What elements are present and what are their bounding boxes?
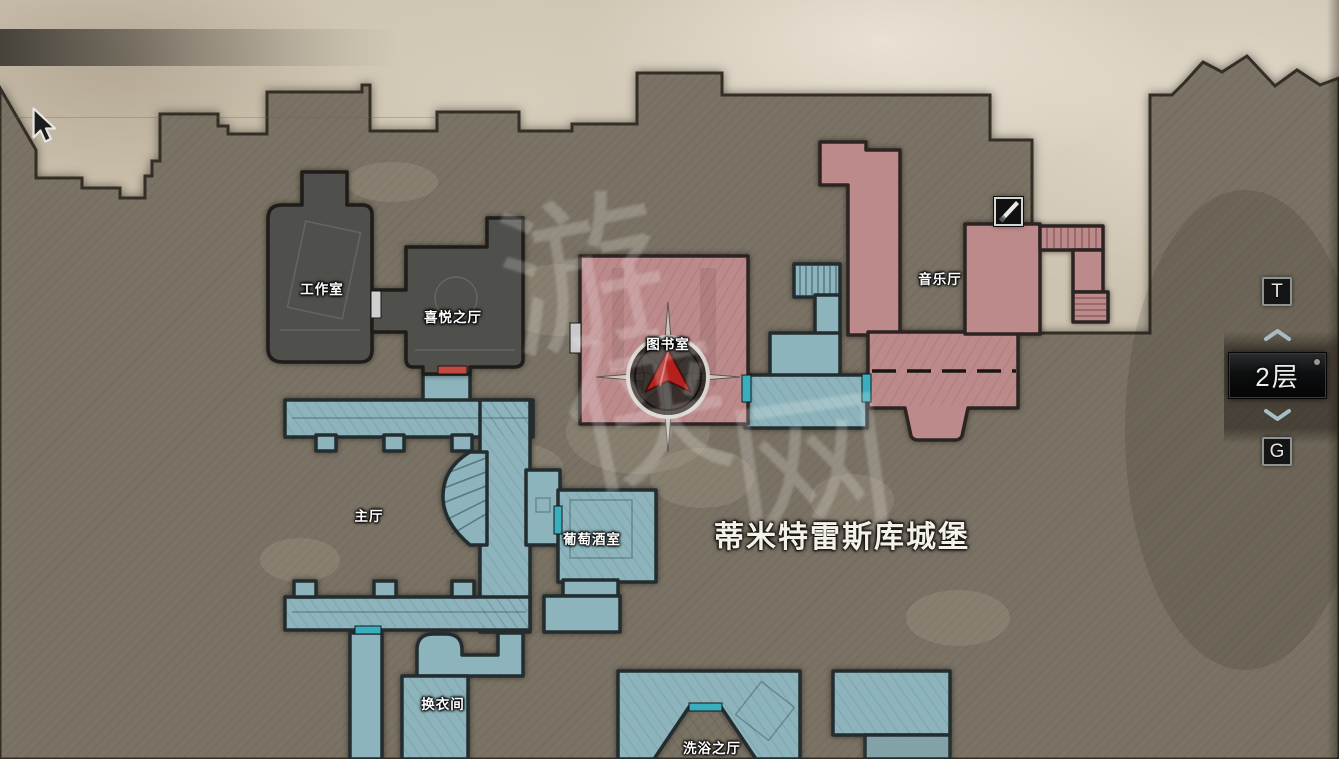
room-label-main-hall: 主厅 [355,505,384,525]
room-east-stairs [794,264,840,297]
battlement [452,581,474,597]
map-viewport[interactable] [0,0,1339,759]
door-cyan-corridor-east [862,374,871,402]
room-south-corridor [350,633,382,759]
parchment-fold-line [0,117,460,118]
battlement [294,581,316,597]
room-music-hall-stairs-block [1073,292,1108,322]
door-white-workshop [371,291,381,318]
room-corridor-stub [423,374,470,402]
door-cyan-wine [554,506,562,534]
room-label-wine-room: 葡萄酒室 [563,528,621,548]
key-hint-T: T [1262,277,1292,306]
room-label-bathing-hall: 洗浴之厅 [683,737,741,757]
current-floor-display: 2层 [1228,352,1327,399]
room-bath-east-lower [865,735,950,759]
dagger-glyph [996,199,1021,224]
door-cyan-south-corridor [355,626,381,634]
door-cyan-corridor-west [742,375,751,402]
mouse-cursor [31,107,61,143]
map-title: 蒂米特雷斯库城堡 [714,512,970,556]
battlement [384,435,404,451]
door-cyan-bathing [689,703,722,711]
room-label-hall-of-joy: 喜悦之厅 [424,306,482,326]
room-label-workshop: 工作室 [300,278,344,298]
door-white-library [570,323,581,353]
floor-box-dot [1314,359,1320,365]
key-hint-G: G [1262,437,1292,466]
chevron-up-icon[interactable] [1262,328,1293,342]
room-music-hall-east-arm [965,224,1040,334]
battlement [452,435,472,451]
door-red-hall-of-joy [438,366,467,374]
dagger-item-icon [994,197,1023,226]
room-music-hall-stairs-leg [1073,250,1103,292]
room-label-library: 图书室 [646,333,690,353]
battlement [374,581,396,597]
room-music-hall-stairs-h [1040,226,1103,250]
room-east-stairs-leg [815,295,840,335]
game-map-screen: 游 侠 网 工作室 喜悦之厅 图书室 音乐厅 主厅 葡萄酒室 换衣间 洗浴之厅 … [0,0,1339,759]
top-gradient-bar [0,29,470,66]
room-wine-lower-block [544,596,620,632]
room-label-changing-room: 换衣间 [421,693,465,713]
battlement [316,435,336,451]
room-wine-annex [563,580,618,596]
room-label-music-hall: 音乐厅 [918,268,962,288]
room-east-corridor-upper [770,333,840,377]
chevron-down-icon[interactable] [1262,408,1293,422]
